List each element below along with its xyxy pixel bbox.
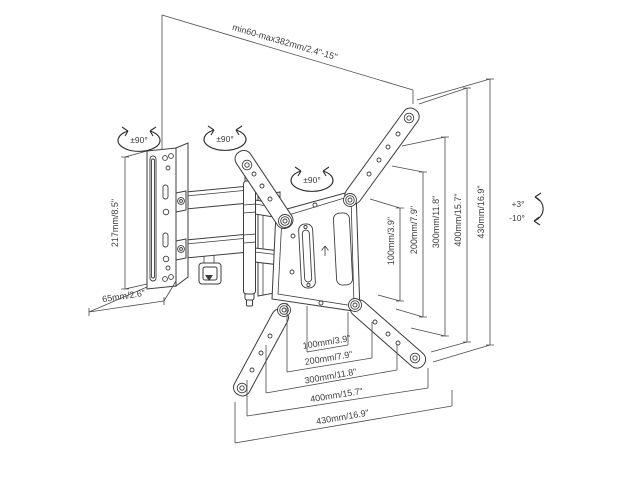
mount-dimension-diagram: min60-max382mm/2.4"-15" 217mm/8.5" 65mm/… (0, 0, 640, 480)
dim-label-vesa-v-400: 400mm/15.7" (453, 193, 463, 246)
cable-clip (199, 255, 221, 284)
dim-label-vesa-h-400: 400mm/15.7" (309, 386, 363, 404)
tilt-arrow-icon (534, 193, 543, 225)
spoke-arm-lower-left (231, 306, 292, 399)
vesa-right-slot (333, 213, 353, 286)
dim-label-vesa-v-200: 200mm/7.9" (409, 206, 419, 254)
label-swivel-joint: ±90° (216, 134, 234, 144)
spoke-arm-upper-right (342, 105, 423, 207)
dim-label-vesa-v-100: 100mm/3.9" (386, 217, 396, 265)
dim-label-wall-plate-height: 217mm/8.5" (110, 199, 120, 247)
label-tilt-down: -10° (509, 213, 525, 223)
label-swivel-wall: ±90° (130, 135, 148, 145)
label-tilt-up: +3° (511, 199, 524, 209)
label-swivel-plate: ±90° (303, 175, 321, 185)
dim-label-vesa-h-300: 300mm/11.8" (304, 367, 358, 386)
dim-label-extension-range: min60-max382mm/2.4"-15" (231, 22, 338, 62)
dim-label-vesa-v-430: 430mm/16.9" (476, 185, 486, 238)
dim-label-vesa-h-430: 430mm/16.9" (315, 408, 369, 427)
dim-label-vesa-h-200: 200mm/7.9" (304, 349, 353, 367)
diagram-svg: min60-max382mm/2.4"-15" 217mm/8.5" 65mm/… (0, 0, 640, 480)
wall-plate (147, 143, 188, 289)
vesa-left-slot (298, 224, 315, 289)
dim-label-folded-depth: 65mm/2.6" (101, 288, 145, 304)
dim-label-vesa-v-300: 300mm/11.8" (431, 196, 441, 249)
